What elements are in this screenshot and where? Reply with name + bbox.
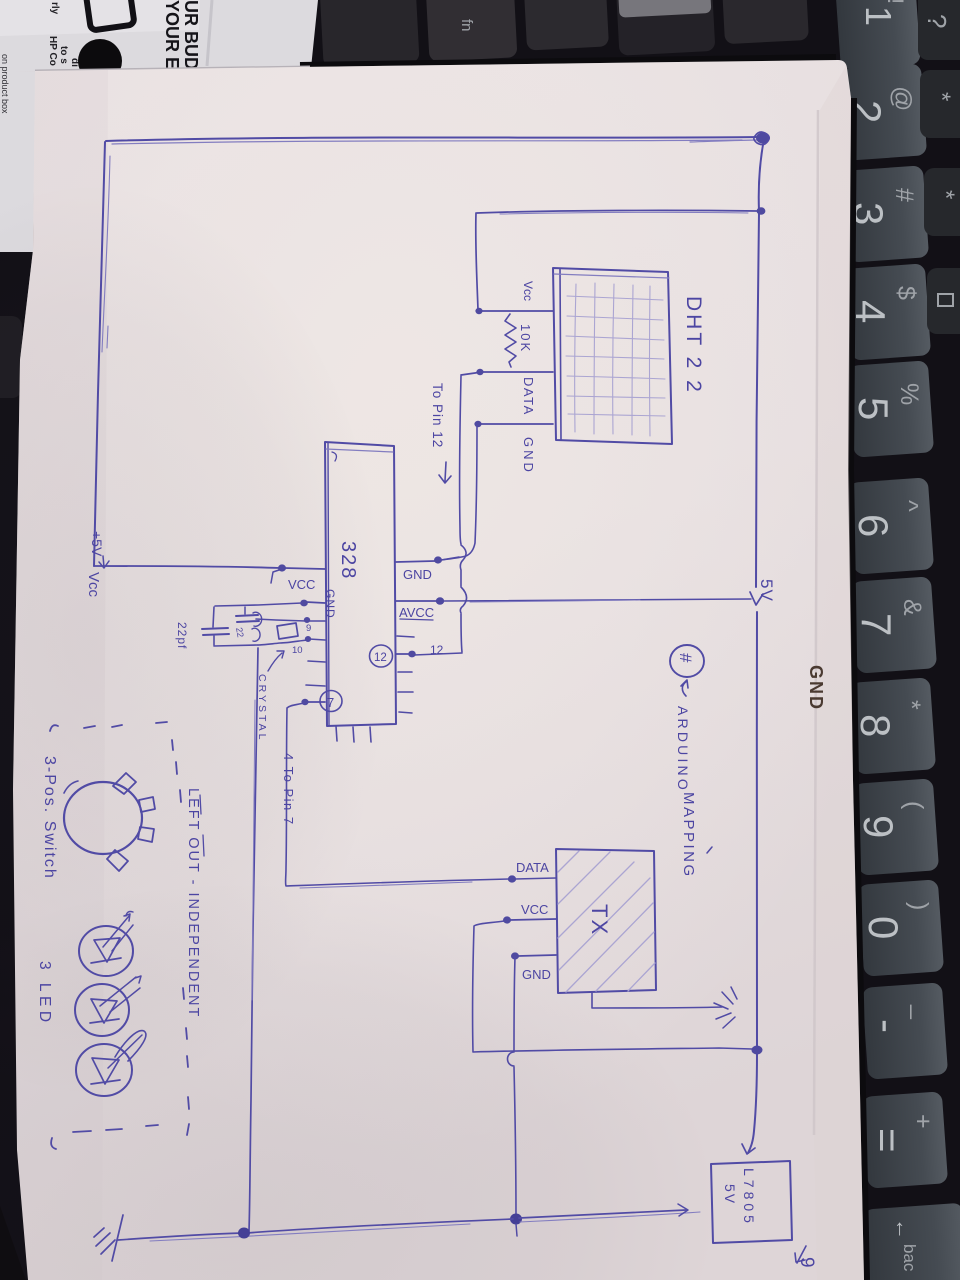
svg-text:L7805: L7805 [741, 1168, 757, 1227]
svg-text:VCC: VCC [288, 577, 315, 592]
svg-text:CRYSTAL: CRYSTAL [256, 674, 268, 742]
svg-text:?: ? [922, 14, 952, 28]
svg-text:%: % [895, 383, 923, 405]
svg-text:+: + [909, 1114, 937, 1129]
svg-text:LEFT OUT - INDEPENDENT: LEFT OUT - INDEPENDENT [185, 788, 201, 1018]
svg-text:&: & [898, 599, 926, 616]
svg-text:GND: GND [522, 967, 551, 982]
svg-text:AVCC: AVCC [399, 605, 434, 620]
svg-text:9: 9 [796, 1257, 817, 1268]
svg-text:on product box: on product box [0, 54, 10, 114]
svg-text:10K: 10K [518, 324, 533, 353]
svg-text:#: # [676, 653, 695, 663]
svg-text:_: _ [909, 1004, 937, 1020]
svg-text:=: = [864, 1128, 911, 1153]
svg-text:fn: fn [458, 19, 475, 32]
svg-text:GND: GND [323, 589, 337, 619]
svg-text:5: 5 [850, 397, 897, 420]
svg-text:9: 9 [855, 815, 902, 838]
svg-text:4 To Pin 7: 4 To Pin 7 [281, 753, 296, 826]
svg-text:!: ! [883, 0, 908, 4]
svg-text:UR BUD: UR BUD [181, 0, 201, 70]
svg-text:MAPPING: MAPPING [680, 792, 697, 879]
svg-text:Vcc: Vcc [521, 281, 535, 301]
svg-text:DATA: DATA [521, 377, 536, 416]
svg-text:*: * [928, 92, 955, 101]
svg-text:HP Co: HP Co [47, 36, 58, 66]
svg-text:to s: to s [58, 46, 69, 64]
svg-text:3-Pos. Switch: 3-Pos. Switch [41, 756, 58, 880]
svg-text:To Pin 12: To Pin 12 [430, 383, 445, 448]
svg-text:22pf: 22pf [175, 622, 189, 649]
svg-text:GND: GND [521, 437, 536, 475]
svg-text:3 LED: 3 LED [36, 961, 53, 1027]
svg-text:-: - [864, 1019, 911, 1033]
svg-text:10: 10 [292, 645, 303, 656]
svg-text:9: 9 [306, 623, 311, 634]
svg-text:7: 7 [327, 695, 334, 710]
svg-text:^: ^ [895, 500, 923, 512]
svg-text:*: * [897, 700, 925, 710]
svg-text:VCC: VCC [521, 902, 548, 917]
svg-text:328: 328 [337, 541, 359, 580]
svg-text:): ) [905, 902, 933, 910]
svg-text:*: * [932, 190, 959, 199]
svg-text:DHT 2 2: DHT 2 2 [682, 296, 705, 395]
svg-text:12: 12 [430, 643, 444, 657]
svg-text:+5V: +5V [89, 531, 105, 557]
svg-text:←: ← [891, 1218, 916, 1240]
svg-text:Vcc: Vcc [85, 572, 102, 598]
svg-text:1: 1 [858, 6, 899, 26]
svg-text:GND: GND [403, 567, 432, 582]
svg-text:(: ( [900, 801, 928, 810]
svg-text:5V: 5V [757, 579, 776, 602]
svg-text:0: 0 [860, 916, 907, 939]
svg-text:#: # [890, 188, 918, 202]
svg-text:@: @ [888, 86, 916, 111]
svg-text:$: $ [892, 286, 920, 300]
svg-text:TX: TX [587, 904, 612, 936]
svg-text:ARDUINO: ARDUINO [675, 706, 691, 793]
svg-text:DATA: DATA [516, 860, 549, 875]
svg-text:bac: bac [900, 1244, 919, 1272]
svg-text:6: 6 [850, 514, 897, 537]
svg-text:12: 12 [374, 652, 387, 664]
svg-text:22: 22 [234, 627, 246, 639]
svg-text:7: 7 [853, 613, 900, 636]
svg-text:YOUR E: YOUR E [162, 0, 182, 69]
svg-text:8: 8 [852, 714, 899, 737]
svg-text:GND: GND [806, 665, 826, 711]
svg-text:5V: 5V [722, 1184, 738, 1205]
svg-text:rly: rly [49, 2, 60, 15]
